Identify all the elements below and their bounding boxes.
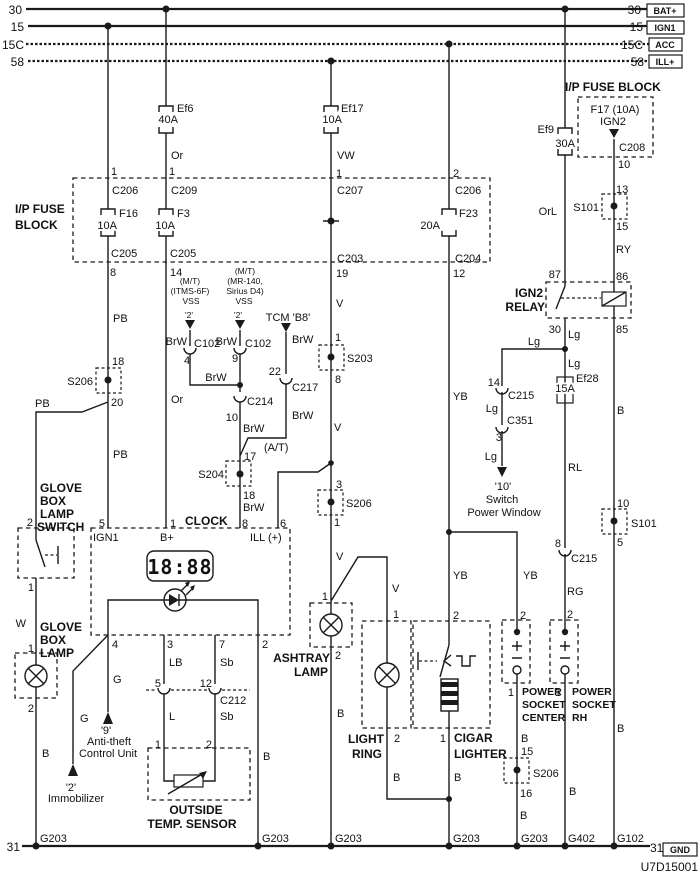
label-iMT: (M/T) [180,276,200,286]
label-aCtrl: Control Unit [79,748,137,760]
label-c1b: 1 [335,332,341,344]
label-i2q: '2' [185,310,193,320]
label-temp1: OUTSIDE [169,803,222,817]
label-mP2: SOCKET [522,699,566,711]
label-eC215: C215 [571,553,597,565]
label-ash2: LAMP [294,665,328,679]
light-ring-lamp [375,663,399,687]
label-d1: 1 [440,733,446,745]
label-dYB1: YB [453,391,468,403]
label-mB1: B [521,733,528,745]
label-G203a: G203 [40,833,67,845]
label-aC206: C206 [112,185,138,197]
label-aPB1: PB [113,313,128,325]
label-clk6: 6 [280,518,286,530]
label-a1: 1 [111,166,117,178]
label-lLg1: Lg [486,403,498,415]
label-aPB2: PB [113,449,128,461]
label-ef9: Ef9 [537,124,554,136]
label-g1a: 1 [28,582,34,594]
label-clkDisp: 18:88 [147,555,212,579]
label-gW: W [16,618,27,630]
label-gnd31R: 31 [650,841,664,855]
label-eR2: RELAY [505,300,545,314]
label-busL15c: 15C [2,38,24,52]
labels: 301515C58301515C58BAT+IGN1ACCILL+Ef640AE… [2,3,698,874]
label-jMR: (MR-140, [227,276,262,286]
label-b1: 1 [169,166,175,178]
label-jMT: (M/T) [235,266,255,276]
label-n2: 2 [394,733,400,745]
label-lLg0: Lg [528,336,540,348]
label-clk8: 8 [242,518,248,530]
c208-arrow-icon [609,129,619,138]
label-gsw3: LAMP [40,507,74,521]
label-fB2: B [617,723,624,735]
label-ef17: Ef17 [341,103,364,115]
label-cVW: VW [337,150,355,162]
label-pSb2: Sb [220,711,233,723]
schematic-canvas: 301515C58301515C58BAT+IGN1ACCILL+Ef640AE… [0,0,700,874]
label-e2: 2 [567,609,573,621]
label-j10: 10 [226,412,238,424]
label-G102: G102 [617,833,644,845]
label-d2a: 2 [453,168,459,180]
label-G203c: G203 [335,833,362,845]
label-jBrW: BrW [216,336,238,348]
label-ef28A: 15A [555,383,575,395]
label-k22: 22 [269,366,281,378]
label-f5: 5 [617,537,623,549]
label-tagBat: BAT+ [653,6,676,16]
label-eLg1: Lg [568,329,580,341]
label-hImm: Immobilizer [48,793,105,805]
label-jC214: C214 [247,396,273,408]
label-gsw2: BOX [40,494,66,508]
label-a8: 8 [110,267,116,279]
power-socket-rh [560,641,570,674]
label-f13: 13 [616,184,628,196]
label-c8: 8 [335,374,341,386]
label-mP3: CENTER [522,712,566,724]
label-code: U7D15001 [641,860,699,874]
label-glp3: LAMP [40,646,74,660]
label-jS204: S204 [198,469,224,481]
label-busR30: 30 [628,3,642,17]
label-c19: 19 [336,268,348,280]
label-dCig2: LIGHTER [454,747,507,761]
label-eB: B [569,786,576,798]
label-j17: 17 [244,451,256,463]
glove-box-lamp [25,665,47,687]
label-bC209: C209 [171,185,197,197]
label-dC204: C204 [455,253,481,265]
wiring-diagram-u7d15001: 301515C58301515C58BAT+IGN1ACCILL+Ef640AE… [0,0,700,874]
label-aG: G [113,674,122,686]
label-temp2: TEMP. SENSOR [147,817,236,831]
label-a18: 18 [112,356,124,368]
label-gB: B [42,748,49,760]
label-nB: B [393,772,400,784]
label-busR15c: 15C [621,38,643,52]
cigar-lighter [418,645,476,711]
label-mB2: B [520,810,527,822]
label-fbIGN2: IGN2 [600,116,626,128]
offpage-arrows [68,129,619,776]
label-l10: '10' [495,481,511,493]
label-c1a: 1 [336,168,342,180]
label-eP2: SOCKET [572,699,616,711]
label-oLB: LB [169,657,182,669]
label-G203e: G203 [521,833,548,845]
label-cB: B [337,708,344,720]
label-lSw: Switch [486,494,518,506]
label-tagAcc: ACC [655,40,675,50]
label-c1d: 1 [322,591,328,603]
label-aS206: S206 [67,376,93,388]
label-c1c: 1 [334,517,340,529]
label-gsw4: SWITCH [37,520,84,534]
label-dC206: C206 [455,185,481,197]
label-dYB2: YB [453,570,468,582]
label-jBrW3: BrW [243,423,265,435]
label-clk1: 1 [170,518,176,530]
label-aIGN1: IGN1 [93,532,119,544]
label-l14: 14 [488,377,500,389]
label-o1: 1 [155,739,161,751]
label-e87: 87 [549,269,561,281]
label-cV3: V [336,551,344,563]
outside-temp-sensor [168,771,207,794]
label-m16: 16 [520,788,532,800]
label-j2q: '2' [234,310,242,320]
label-a20: 20 [111,397,123,409]
label-lPW: Power Window [467,507,540,519]
label-jBrW2: BrW [205,372,227,384]
label-mS206: S206 [533,768,559,780]
label-cC207: C207 [337,185,363,197]
label-f3: F3 [177,208,190,220]
label-cS206: S206 [346,498,372,510]
label-ipTitle1: I/P FUSE [15,202,65,216]
label-eRG: RG [567,586,584,598]
label-hG: G [80,713,89,725]
label-bC205: C205 [170,248,196,260]
cigar-lighter-box [413,621,490,728]
label-aAnti: Anti-theft [87,736,131,748]
label-G203b: G203 [262,833,289,845]
label-jC102: C102 [245,338,271,350]
label-eP1: POWER [572,686,612,698]
label-d12: 12 [453,268,465,280]
label-ef6: Ef6 [177,103,194,115]
vss2-arrow-icon [235,320,245,329]
label-kC217: C217 [292,382,318,394]
label-f10a: 10 [618,159,630,171]
label-e1: 1 [555,687,561,699]
label-m15: 15 [521,746,533,758]
label-lC351: C351 [507,415,533,427]
label-f23A: 20A [420,220,440,232]
label-cV1: V [336,298,344,310]
label-f10b: 10 [617,498,629,510]
bus-tags [647,4,697,856]
power-window-arrow-icon [497,467,507,477]
label-fS101b: S101 [631,518,657,530]
label-c2b: 2 [335,650,341,662]
power-socket-center [512,641,522,674]
label-clk4: 4 [112,639,118,651]
label-j18: 18 [243,490,255,502]
label-f3A: 10A [155,220,175,232]
label-e8: 8 [555,538,561,550]
label-pSb: Sb [220,657,233,669]
label-e30: 30 [549,324,561,336]
label-gnd31L: 31 [7,840,21,854]
glove-box-lamp-switch-box [18,528,74,578]
label-ef9A: 30A [555,138,575,150]
label-m2: 2 [520,610,526,622]
label-f86: 86 [616,271,628,283]
immobilizer-arrow-icon [68,764,78,776]
latch-icon [456,656,476,666]
label-iVSS: VSS [182,296,199,306]
label-glp2: BOX [40,633,66,647]
label-bOr1: Or [171,150,184,162]
label-eOrL: OrL [539,206,557,218]
label-nLight: LIGHT [348,732,385,746]
label-mYB: YB [523,570,538,582]
label-o5: 5 [155,678,161,690]
label-ipTitle2: BLOCK [15,218,58,232]
label-eP3: RH [572,712,587,724]
label-fbF17: F17 (10A) [591,104,640,116]
label-gsw1: GLOVE [40,481,82,495]
label-lLg2: Lg [485,451,497,463]
label-a5: 5 [99,518,105,530]
label-lC215: C215 [508,390,534,402]
label-aC205: C205 [111,248,137,260]
label-cV2: V [334,422,342,434]
label-busR58: 58 [631,55,645,69]
label-clkTitle: CLOCK [185,514,228,528]
label-jSir: Sirius D4) [226,286,263,296]
label-bOr2: Or [171,394,184,406]
label-fS101a: S101 [573,202,599,214]
label-clkIll: ILL (+) [250,532,282,544]
label-c212: C212 [220,695,246,707]
label-busL58: 58 [11,55,25,69]
label-cC203: C203 [337,253,363,265]
label-at: (A/T) [264,442,288,454]
label-d2b: 2 [453,610,459,622]
label-qB: B [263,751,270,763]
label-dCig1: CIGAR [454,731,493,745]
label-m1: 1 [508,687,514,699]
label-f85: 85 [616,324,628,336]
label-ef6A: 40A [158,114,178,126]
label-eRL: RL [568,462,582,474]
label-iBrW: BrW [166,336,188,348]
label-oL: L [169,711,175,723]
label-nV: V [392,583,400,595]
label-n1: 1 [393,609,399,621]
label-busL30: 30 [9,3,23,17]
label-f23: F23 [459,208,478,220]
label-tagIgn1: IGN1 [654,23,675,33]
label-nRing: RING [352,747,382,761]
label-p12: 12 [200,678,212,690]
label-dB: B [454,772,461,784]
label-clk2: 2 [262,639,268,651]
label-f16A: 10A [97,220,117,232]
label-j9: 9 [232,353,238,365]
label-busR15: 15 [630,20,644,34]
label-f16: F16 [119,208,138,220]
fuse-f23 [442,209,456,236]
label-ash1: ASHTRAY [273,651,330,665]
label-fbTitle: I/P FUSE BLOCK [565,80,661,94]
label-eLg2: Lg [568,358,580,370]
label-kTCM: TCM 'B8' [266,312,311,324]
label-G203d: G203 [453,833,480,845]
label-glp1: GLOVE [40,620,82,634]
label-clk3: 3 [167,639,173,651]
label-G402: G402 [568,833,595,845]
clock-inner-box [108,600,258,635]
label-l3: 3 [496,432,502,444]
label-kBrW: BrW [292,334,314,346]
vss1-arrow-icon [185,320,195,329]
label-fB1: B [617,405,624,417]
label-i4: 4 [184,355,190,367]
ashtray-lamp [320,614,342,636]
label-c3: 3 [336,479,342,491]
label-ef17A: 10A [322,114,342,126]
label-gndTag: GND [670,845,691,855]
label-kBrW2: BrW [292,410,314,422]
label-cS203: S203 [347,353,373,365]
label-g1b: 1 [28,643,34,655]
label-tagIll: ILL+ [656,57,675,67]
label-clk7: 7 [219,639,225,651]
label-iITMS: (ITMS-6F) [171,286,210,296]
ign2-relay [556,282,626,309]
label-busL15: 15 [11,20,25,34]
tcm-arrow-icon [281,323,291,332]
label-f15: 15 [616,221,628,233]
label-eR1: IGN2 [515,286,543,300]
label-p2: 2 [206,739,212,751]
label-fRY: RY [616,244,632,256]
label-g2b: 2 [28,703,34,715]
label-jBrW4: BrW [243,502,265,514]
label-gPB: PB [35,398,50,410]
label-jVSS: VSS [235,296,252,306]
anti-theft-arrow-icon [103,712,113,724]
label-ef28: Ef28 [576,373,599,385]
label-fC208: C208 [619,142,645,154]
label-clkB: B+ [160,532,174,544]
label-g2a: 2 [27,517,33,529]
